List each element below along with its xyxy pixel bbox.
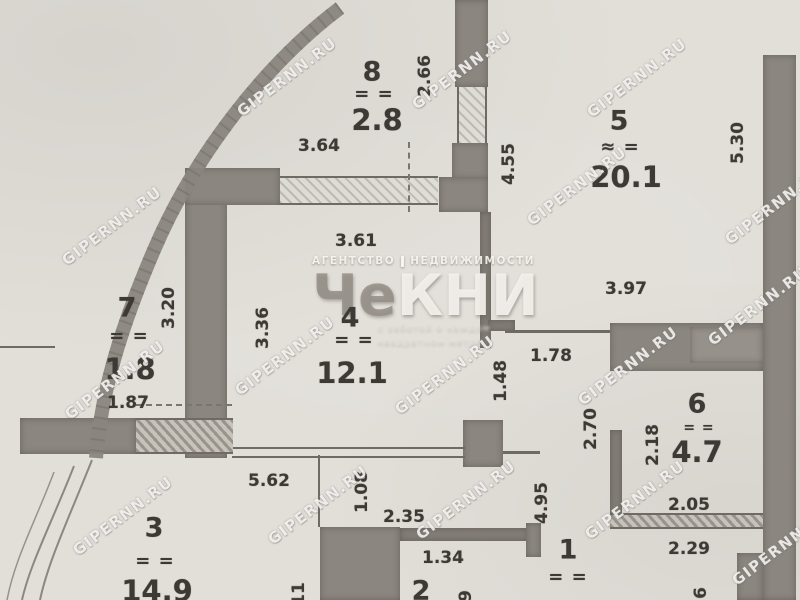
dim-label-2-05: 2.05 (668, 495, 710, 515)
dim-label-4-55: 4.55 (499, 143, 519, 185)
room-number: 1 (559, 535, 578, 566)
room-area: 12.1 (316, 356, 388, 390)
room-mark: = = (683, 420, 714, 436)
agency-tagline: с заботой о каждом квадратном метре (378, 323, 539, 350)
dim-label-3-20: 3.20 (159, 287, 179, 329)
agency-tagline-line2: квадратном метре (378, 337, 539, 351)
room-area: 2.8 (351, 103, 402, 137)
dim-label-1-34: 1.34 (422, 548, 464, 568)
dim-label-1-78: 1.78 (530, 346, 572, 366)
dim-label-3-64: 3.64 (298, 136, 340, 156)
dim-label-1-48: 1.48 (491, 360, 511, 402)
room-number: 7 (118, 293, 137, 324)
room-mark: = = (354, 84, 393, 105)
room-number: 5 (610, 106, 629, 137)
dim-label-2-70: 2.70 (581, 408, 601, 450)
dim-label-5-62: 5.62 (248, 471, 290, 491)
dim-label-2-18: 2.18 (643, 424, 663, 466)
dim-label-1-87: 1.87 (107, 393, 149, 413)
room-number: 2 (412, 576, 431, 600)
agency-tagline-line1: с заботой о каждом (378, 323, 539, 337)
partial-dim-label: 6 (691, 587, 711, 599)
room-number: 6 (688, 389, 707, 420)
room-area: 14.9 (121, 574, 193, 600)
room-mark: = = (109, 326, 148, 347)
dim-label-2-29: 2.29 (668, 539, 710, 559)
floor-plan: 8 = = 2.8 5 ≈ = 20.1 7 = = 1.8 4 = = 12.… (0, 0, 800, 600)
dim-label-4-95: 4.95 (532, 482, 552, 524)
room-mark: = = (548, 567, 587, 588)
dim-label-3-97: 3.97 (605, 279, 647, 299)
room-mark: = = (135, 551, 174, 572)
dim-label-5-30: 5.30 (728, 122, 748, 164)
partial-dim-label: 9 (456, 590, 476, 600)
dim-label-3-61: 3.61 (335, 231, 377, 251)
dim-label-3-36: 3.36 (253, 307, 273, 349)
agency-name-part2: КНИ (397, 263, 539, 329)
room-mark: = = (334, 330, 373, 351)
partial-dim-label: 11 (289, 582, 309, 600)
room-number: 3 (145, 513, 164, 544)
